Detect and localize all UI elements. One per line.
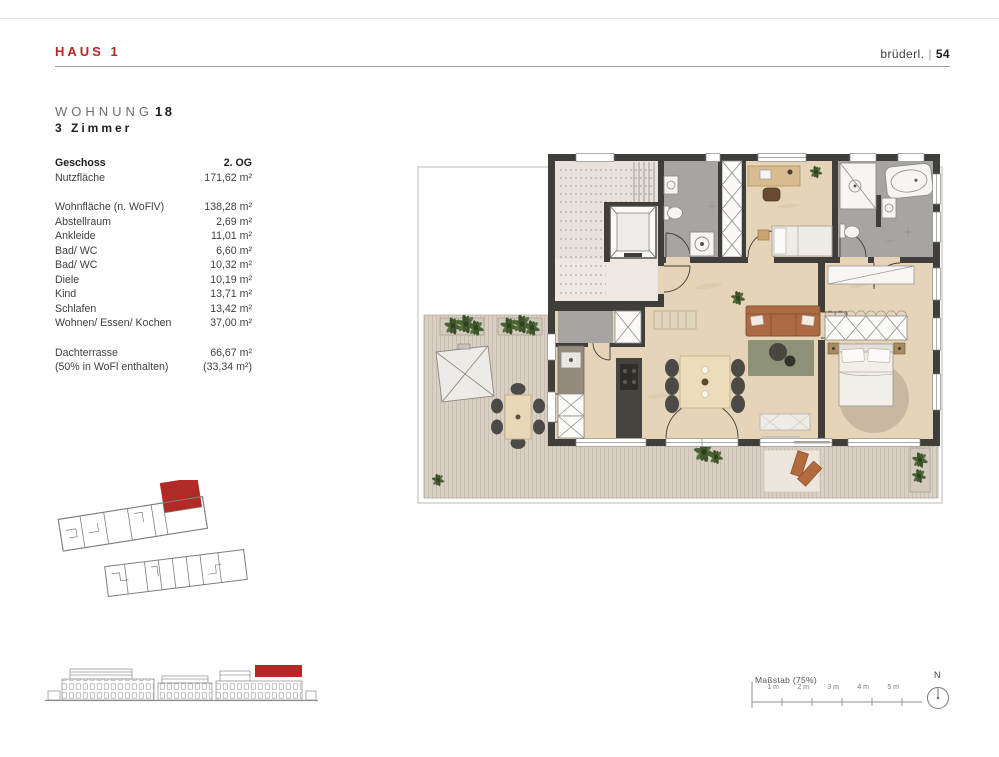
scale-tick-label: 1 m [753, 684, 779, 691]
parasol-icon [436, 344, 494, 402]
table-row: Wohnen/ Essen/ Kochen37,00 m² [55, 316, 252, 331]
window [848, 439, 920, 447]
table-row: Abstellraum2,69 m² [55, 215, 252, 230]
storage-room [558, 311, 613, 343]
key-plans [48, 480, 263, 598]
unit-subtitle: 3 Zimmer [55, 121, 132, 135]
page-number: 54 [936, 47, 950, 61]
desk-icon [748, 166, 800, 186]
table-row: Geschoss2. OG [55, 156, 252, 171]
brand-name: brüderl. [880, 47, 924, 61]
table-row: Ankleide11,01 m² [55, 229, 252, 244]
table-row: Bad/ WC10,32 m² [55, 258, 252, 273]
table-row: Schlafen13,42 m² [55, 302, 252, 317]
kitchen-island-icon [616, 358, 642, 438]
sofa-icon [746, 306, 820, 336]
page-top-divider [0, 18, 999, 19]
floor-plan-drawing [408, 146, 948, 518]
table-row: Wohnfläche (n. WoFlV)138,28 m² [55, 200, 252, 215]
coat-bench-icon [654, 311, 696, 329]
elevator-icon [610, 206, 656, 258]
closet-icon [615, 311, 641, 343]
coffee-table-icon [769, 343, 787, 361]
north-label: N [934, 670, 941, 680]
stairwell [555, 161, 660, 306]
wardrobe-column-icon [722, 161, 742, 257]
brand-separator: | [928, 47, 932, 61]
table-row: Kind13,71 m² [55, 287, 252, 302]
header-divider [55, 66, 950, 67]
key-plan-lower [105, 550, 248, 597]
window [576, 439, 646, 447]
scale-tick-label: 4 m [843, 684, 869, 691]
scale-bar: Maßstab (75%) 1 m 2 m 3 m 4 m 5 m N [745, 666, 960, 721]
dining-set-icon [665, 356, 745, 413]
lounge-area [764, 450, 822, 492]
scale-tick-label: 5 m [873, 684, 899, 691]
table-row: Dachterrasse66,67 m² [55, 346, 252, 361]
brochure-page: HAUS 1 brüderl.|54 WOHNUNG18 3 Zimmer Ge… [0, 0, 999, 757]
scale-tick-label: 2 m [783, 684, 809, 691]
appliance-icon [558, 394, 584, 438]
table-row: Bad/ WC6,60 m² [55, 244, 252, 259]
compass-icon [928, 688, 949, 709]
bed-single-icon [772, 226, 832, 256]
sink-icon [882, 198, 896, 218]
scale-tick-label: 3 m [813, 684, 839, 691]
brand-pagenumber: brüderl.|54 [880, 47, 950, 61]
ankleide-wardrobe-icon [828, 266, 914, 284]
shower-icon [840, 163, 876, 209]
floor-plan [408, 146, 948, 518]
nightstand-icon [758, 230, 769, 240]
page-title: HAUS 1 [55, 44, 121, 59]
elevation-drawing [40, 655, 330, 707]
table-row: Diele10,19 m² [55, 273, 252, 288]
sideboard-icon [760, 414, 810, 430]
area-table: Geschoss2. OG Nutzfläche171,62 m² Wohnfl… [55, 156, 252, 375]
table-row: Nutzfläche171,62 m² [55, 171, 252, 186]
highlighted-unit-elevation [255, 665, 302, 677]
sink-icon [664, 176, 678, 194]
key-plan-upper [55, 480, 207, 551]
bathtub-icon [884, 163, 933, 200]
washer-icon [690, 232, 714, 256]
terrace-door [666, 439, 738, 447]
bed-double-icon [839, 344, 893, 406]
chair-icon [763, 188, 780, 201]
table-row: (50% in WoFl enthalten)(33,34 m²) [55, 360, 252, 375]
unit-title: WOHNUNG18 [55, 104, 175, 119]
